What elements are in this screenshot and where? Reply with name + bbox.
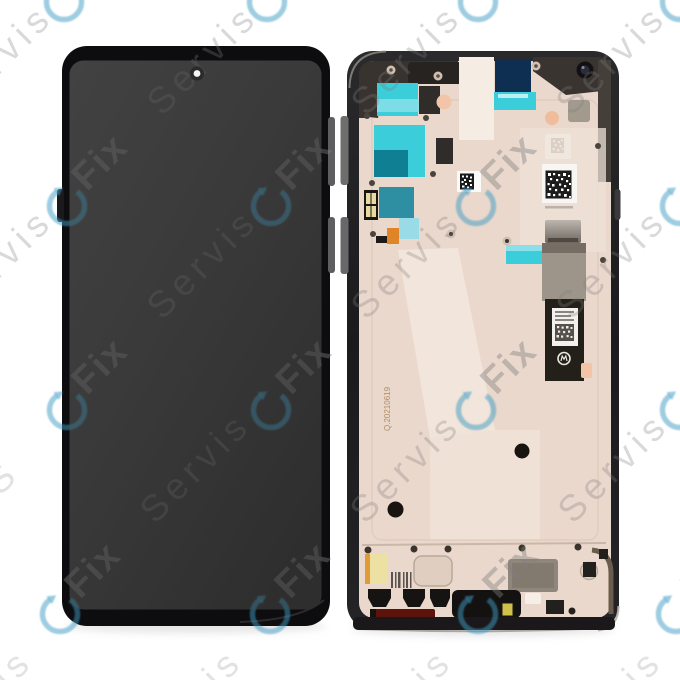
- svg-text:Q.20210619: Q.20210619: [383, 386, 392, 431]
